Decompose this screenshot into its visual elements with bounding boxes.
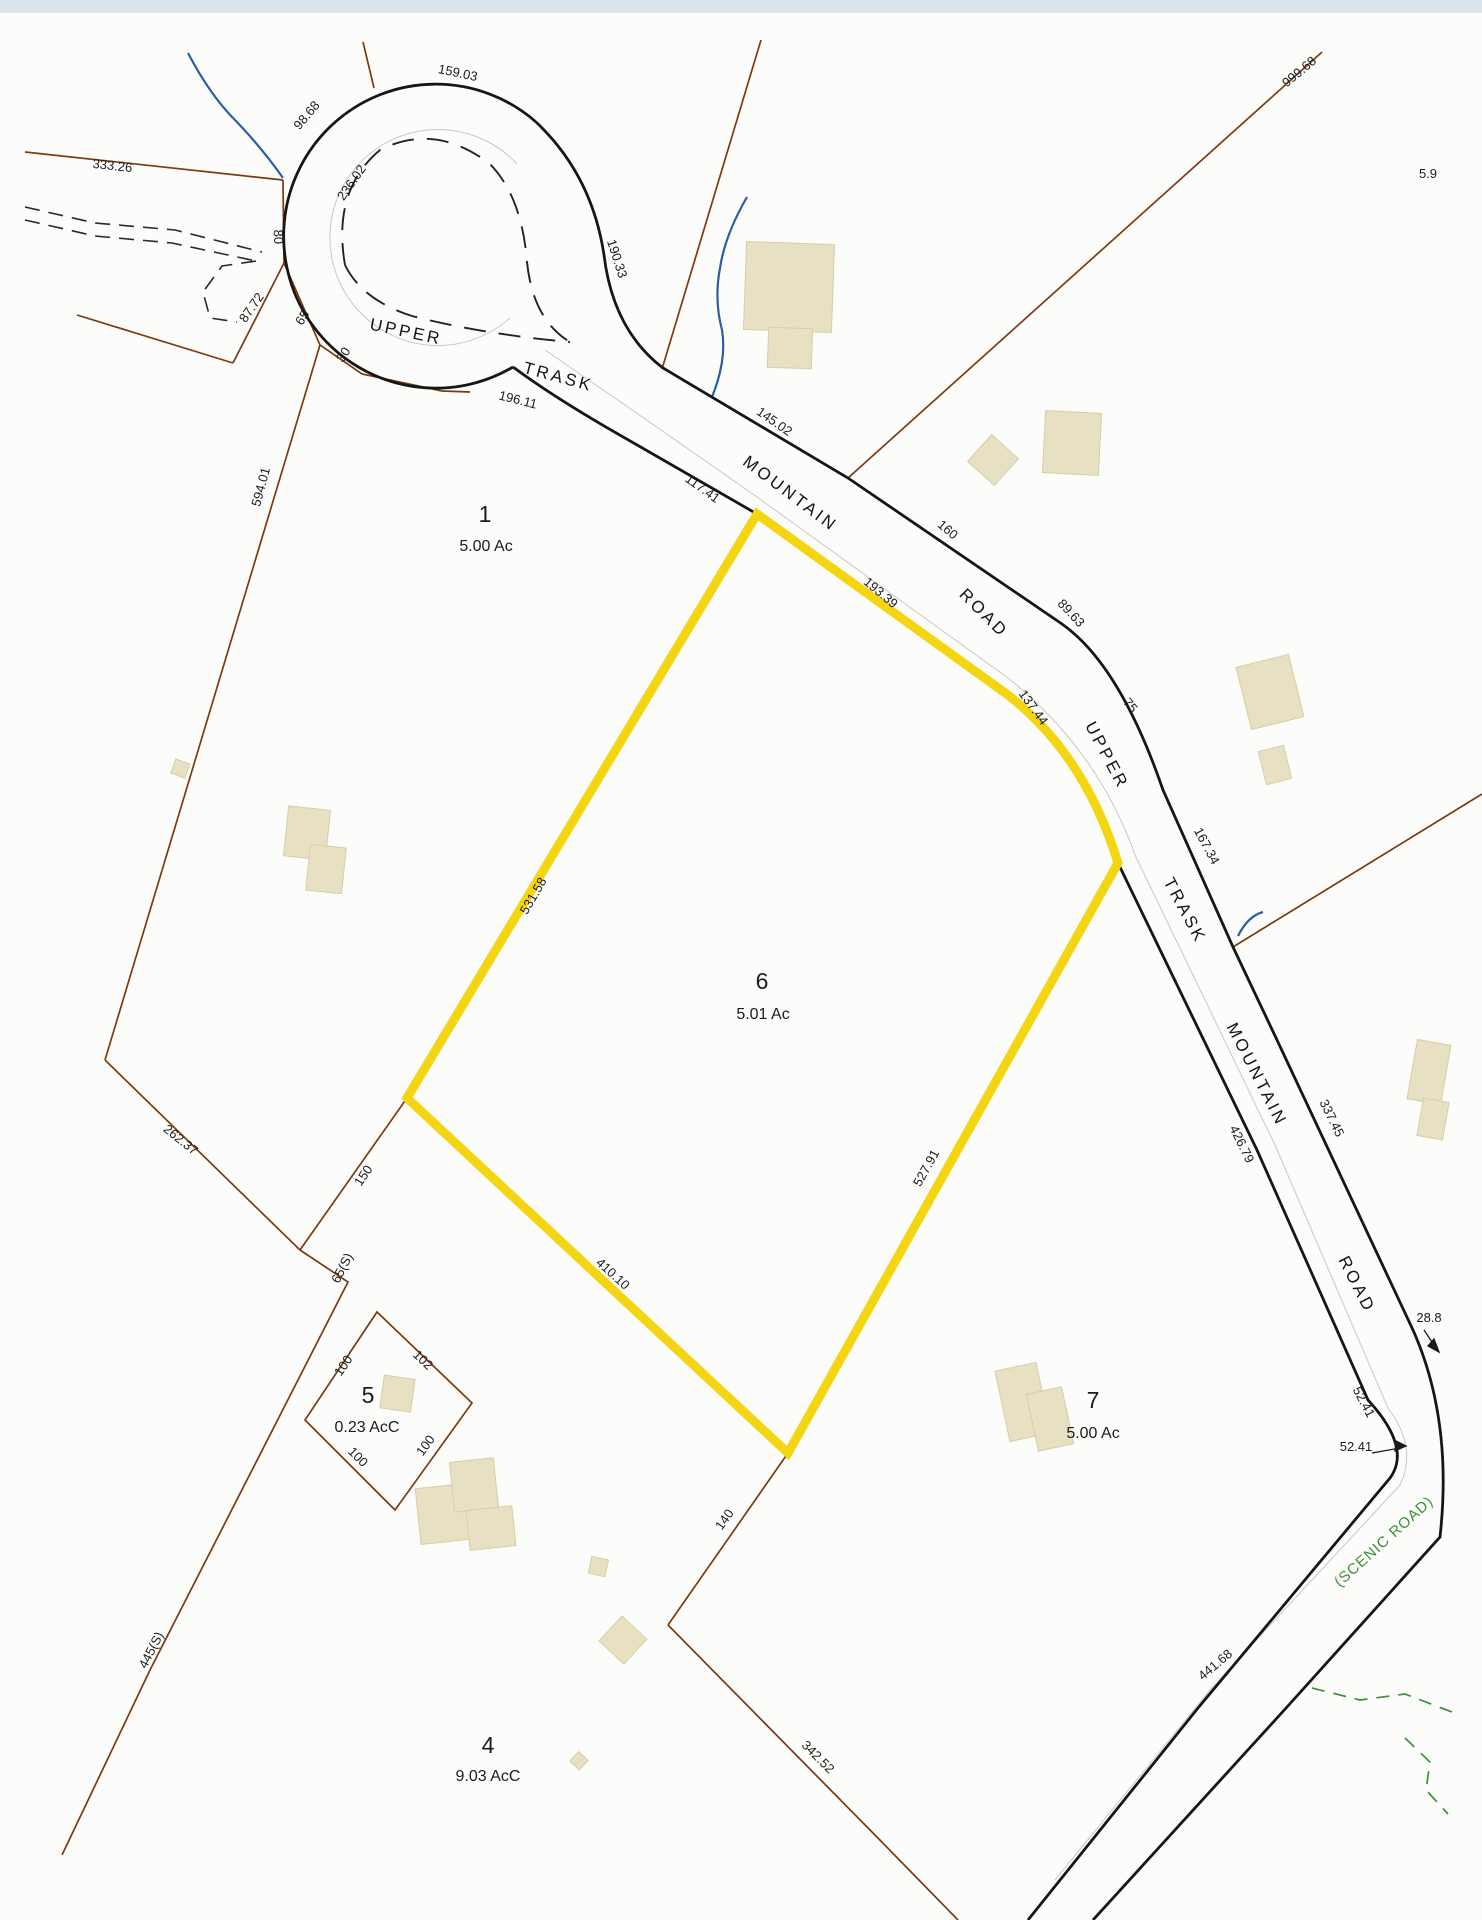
culdesac-outer-edge [284, 84, 536, 388]
boundary-line [62, 1250, 348, 1855]
dimension-label: 262.37 [161, 1121, 201, 1158]
road-edge-southwest [513, 367, 1397, 1920]
dimension-label: 333.26 [92, 156, 133, 175]
trail-dashed [25, 207, 262, 252]
dimension-label: 65(S) [328, 1250, 356, 1285]
plat-map-page: UPPER TRASK MOUNTAIN ROAD UPPER TRASK MO… [0, 0, 1482, 1920]
boundary-line [105, 345, 320, 1060]
dimension-label: 28.8 [1416, 1310, 1441, 1325]
trail-dashed [25, 220, 256, 261]
dimension-label: 98.68 [290, 98, 322, 133]
building [1417, 1098, 1449, 1140]
dimension-label: 531.58 [517, 875, 550, 917]
dimension-label: 140 [712, 1506, 737, 1532]
parcel-7-number: 7 [1087, 1387, 1100, 1413]
dimension-label: 594.01 [248, 466, 273, 508]
building [1236, 654, 1304, 729]
dimension-label: 441.68 [1195, 1646, 1235, 1683]
building [1042, 411, 1101, 476]
building [968, 435, 1019, 486]
parcel-6-number: 6 [756, 968, 769, 994]
building [767, 327, 812, 369]
road-name-trask-2: TRASK [1160, 874, 1210, 946]
pavement-lines-layer [330, 130, 1407, 1880]
dimension-label: 445(S) [135, 1629, 166, 1671]
culdesac-inner-pavement-edge [330, 130, 517, 346]
dimension-label: 999.68 [1279, 53, 1319, 90]
dimension-label: 236.02 [334, 162, 369, 203]
road-name-mountain-2: MOUNTAIN [1223, 1020, 1291, 1130]
building [380, 1375, 415, 1412]
building [1258, 745, 1291, 784]
parcel-7-area: 5.00 Ac [1066, 1425, 1119, 1442]
road-name-road-1: ROAD [956, 585, 1013, 642]
dimension-label: 80 [271, 229, 286, 244]
tax-map-canvas: UPPER TRASK MOUNTAIN ROAD UPPER TRASK MO… [0, 0, 1482, 1920]
road-layer [284, 84, 1444, 1920]
dimension-label: 89.63 [1055, 596, 1088, 630]
arrowhead [1428, 1339, 1439, 1352]
dimension-label: 159.03 [437, 61, 479, 84]
green-dashed-line [1312, 1688, 1452, 1712]
boundary-line [300, 1098, 407, 1250]
boundary-line [77, 315, 233, 363]
boundary-line [105, 1060, 300, 1250]
parcel-6-area: 5.01 Ac [736, 1006, 789, 1023]
dimension-label: 102 [410, 1347, 436, 1373]
parcel-4-area: 9.03 AcC [456, 1768, 521, 1785]
dimension-label: 52.41 [1350, 1384, 1379, 1420]
dimension-label: 5.9 [1419, 166, 1437, 181]
dimension-label: 150 [351, 1162, 376, 1188]
road-name-road-2: ROAD [1335, 1253, 1380, 1316]
parcel-5-number: 5 [362, 1382, 375, 1408]
building [306, 844, 347, 894]
road-name-upper-1: UPPER [368, 315, 444, 349]
dimension-arrows-layer [1372, 1330, 1439, 1453]
road-name-labels: UPPER TRASK MOUNTAIN ROAD UPPER TRASK MO… [368, 315, 1437, 1591]
road-name-upper-2: UPPER [1081, 718, 1132, 792]
green-dashed-line [1405, 1738, 1448, 1814]
parcel-5-boundary [305, 1312, 472, 1510]
building [450, 1458, 499, 1512]
culdesac-inner-dashed [342, 139, 570, 342]
building [570, 1752, 588, 1770]
dimension-label: 196.11 [497, 388, 538, 412]
boundary-line [668, 1625, 958, 1920]
scan-edge-strip [0, 0, 1482, 13]
dimension-label: 52.41 [1340, 1439, 1373, 1454]
stream-line [188, 53, 283, 178]
arrowhead [1395, 1441, 1406, 1451]
stream-line [712, 197, 747, 397]
parcel-4-number: 4 [482, 1732, 495, 1758]
parcel-1-area: 5.00 Ac [459, 538, 512, 555]
trails-layer [25, 207, 262, 322]
boundary-line [363, 42, 374, 88]
stream-line [1238, 912, 1263, 936]
dimension-label: 65 [292, 307, 312, 327]
building [466, 1506, 516, 1551]
parcel-1-number: 1 [479, 501, 492, 527]
buildings-layer [171, 241, 1451, 1769]
boundary-line [1233, 794, 1482, 947]
dimension-label: 342.52 [799, 1737, 838, 1776]
parcel-5-area: 0.23 AcC [335, 1419, 400, 1436]
green-dashed-layer [1312, 1688, 1452, 1814]
building [1407, 1040, 1451, 1105]
building [588, 1557, 608, 1577]
culdesac-dashed-layer [342, 139, 570, 342]
boundary-line [668, 1453, 788, 1625]
building [599, 1616, 647, 1664]
building [171, 759, 190, 778]
dimension-label: 117.41 [683, 471, 723, 506]
building [743, 241, 834, 332]
road-edge-northeast [536, 122, 1443, 1920]
dimension-label: 100 [345, 1444, 371, 1470]
boundary-line [25, 152, 283, 180]
road-name-trask-1: TRASK [521, 358, 595, 395]
